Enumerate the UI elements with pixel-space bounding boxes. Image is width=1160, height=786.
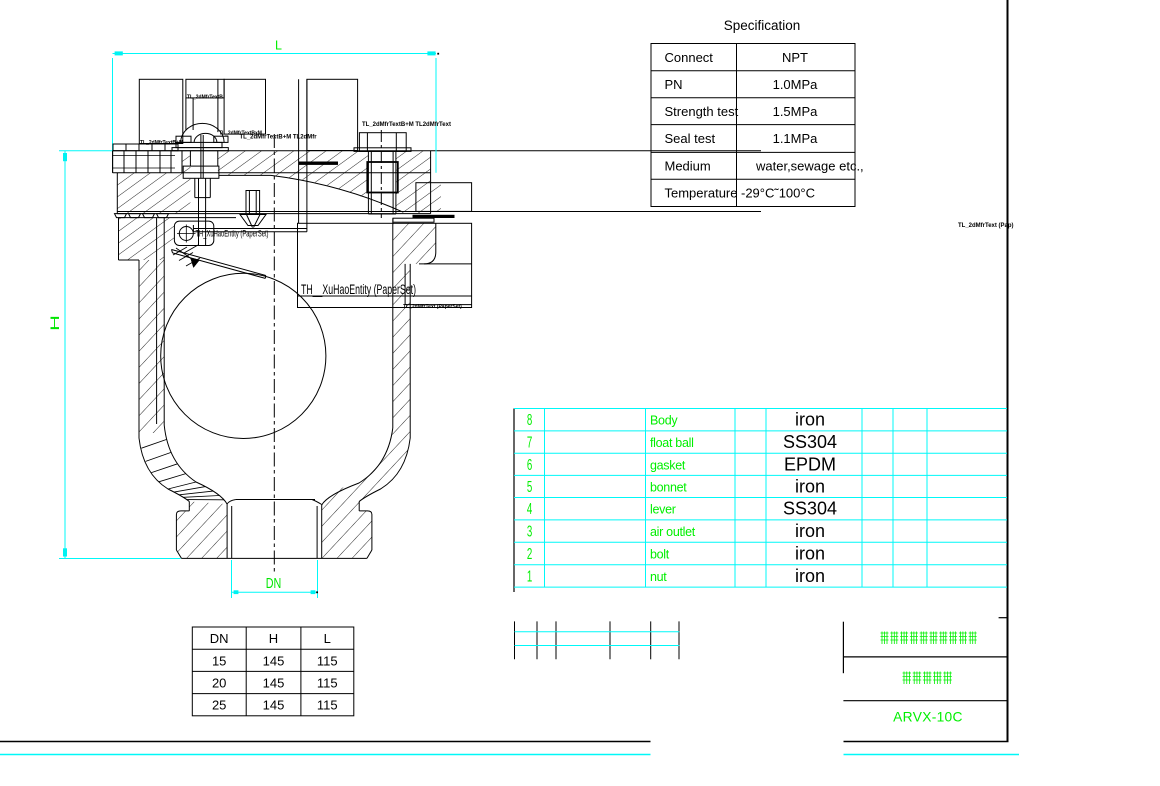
svg-text:L: L (324, 631, 331, 646)
svg-text:25: 25 (212, 698, 226, 713)
svg-text:-29°C˜100°C: -29°C˜100°C (741, 185, 815, 200)
svg-text:Specification: Specification (724, 18, 801, 33)
svg-text:5: 5 (527, 479, 532, 496)
svg-text:1: 1 (527, 568, 532, 585)
svg-text:air outlet: air outlet (650, 525, 696, 539)
svg-text:iron: iron (795, 544, 825, 564)
svg-text:TL_2dMfrText (Pap): TL_2dMfrText (Pap) (958, 223, 1014, 229)
svg-text:TL_2dMfrTextB: TL_2dMfrTextB (187, 95, 223, 101)
svg-text:SS304: SS304 (783, 499, 837, 519)
svg-text:15: 15 (212, 653, 226, 668)
svg-text:Body: Body (650, 414, 678, 428)
svg-text:lever: lever (650, 503, 676, 517)
svg-text:20: 20 (212, 676, 226, 691)
svg-text:TH_XuHaoEntity (PaperSet): TH_XuHaoEntity (PaperSet) (196, 229, 269, 240)
svg-text:7: 7 (527, 435, 532, 452)
svg-text:115: 115 (317, 653, 338, 668)
svg-text:bonnet: bonnet (650, 481, 687, 495)
svg-text:Connect: Connect (665, 50, 714, 65)
svg-text:PN: PN (665, 77, 683, 92)
svg-text:Strength test: Strength test (665, 104, 739, 119)
svg-text:TL_2dMfrText (PaperSet): TL_2dMfrText (PaperSet) (403, 304, 462, 310)
svg-text:water,sewage etc.,: water,sewage etc., (755, 158, 864, 173)
svg-text:iron: iron (795, 477, 825, 497)
svg-text:TL_2dMfrTextB+M TL2dMfr: TL_2dMfrTextB+M TL2dMfr (240, 135, 318, 141)
svg-text:gasket: gasket (650, 458, 686, 472)
svg-text:1.5MPa: 1.5MPa (773, 104, 819, 119)
svg-text:SS304: SS304 (783, 432, 837, 452)
svg-text:DN: DN (266, 575, 282, 592)
svg-text:TL_2dMfrTextB+M TL2dMfrText: TL_2dMfrTextB+M TL2dMfrText (362, 122, 451, 128)
svg-text:NPT: NPT (782, 50, 808, 65)
svg-text:TH__XuHaoEntity (PaperSet): TH__XuHaoEntity (PaperSet) (301, 282, 416, 297)
svg-text:6: 6 (527, 457, 532, 474)
svg-text:1.0MPa: 1.0MPa (773, 77, 819, 92)
svg-text:DN: DN (210, 631, 229, 646)
svg-text:2: 2 (527, 546, 532, 563)
svg-text:Seal test: Seal test (665, 131, 716, 146)
svg-text:4: 4 (527, 501, 533, 518)
svg-text:bolt: bolt (650, 548, 670, 562)
svg-text:8: 8 (527, 412, 532, 429)
svg-text:float ball: float ball (650, 436, 694, 450)
svg-text:TL_2dMfrTextB+M: TL_2dMfrTextB+M (140, 140, 183, 146)
svg-text:115: 115 (317, 698, 338, 713)
svg-text:145: 145 (263, 698, 285, 713)
svg-text:1.1MPa: 1.1MPa (773, 131, 819, 146)
svg-text:nut: nut (650, 570, 667, 584)
svg-text:3: 3 (527, 524, 532, 541)
svg-text:EPDM: EPDM (784, 454, 836, 474)
svg-text:L: L (275, 39, 282, 53)
svg-text:145: 145 (263, 653, 285, 668)
svg-text:ARVX-10C: ARVX-10C (893, 710, 963, 725)
svg-text:Medium: Medium (665, 158, 711, 173)
svg-text:iron: iron (795, 521, 825, 541)
svg-text:Temperature: Temperature (665, 185, 738, 200)
svg-text:115: 115 (317, 676, 338, 691)
svg-text:145: 145 (263, 676, 285, 691)
svg-text:iron: iron (795, 410, 825, 430)
svg-text:H: H (269, 631, 278, 646)
svg-text:iron: iron (795, 566, 825, 586)
svg-text:H: H (50, 315, 62, 331)
